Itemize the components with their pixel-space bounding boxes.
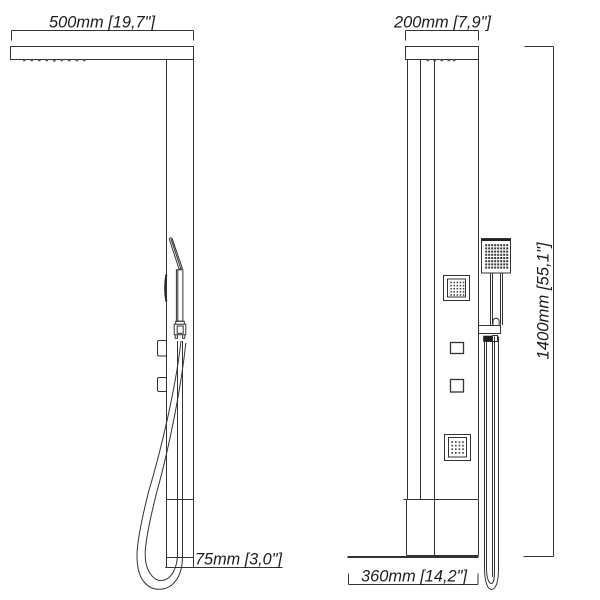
svg-text:1400mm [55,1"]: 1400mm [55,1"]: [534, 241, 553, 359]
svg-text:360mm [14,2"]: 360mm [14,2"]: [361, 567, 468, 586]
svg-text:200mm [7,9"]: 200mm [7,9"]: [393, 13, 492, 32]
svg-text:75mm [3,0"]: 75mm [3,0"]: [195, 550, 283, 569]
svg-text:500mm [19,7"]: 500mm [19,7"]: [49, 13, 156, 32]
